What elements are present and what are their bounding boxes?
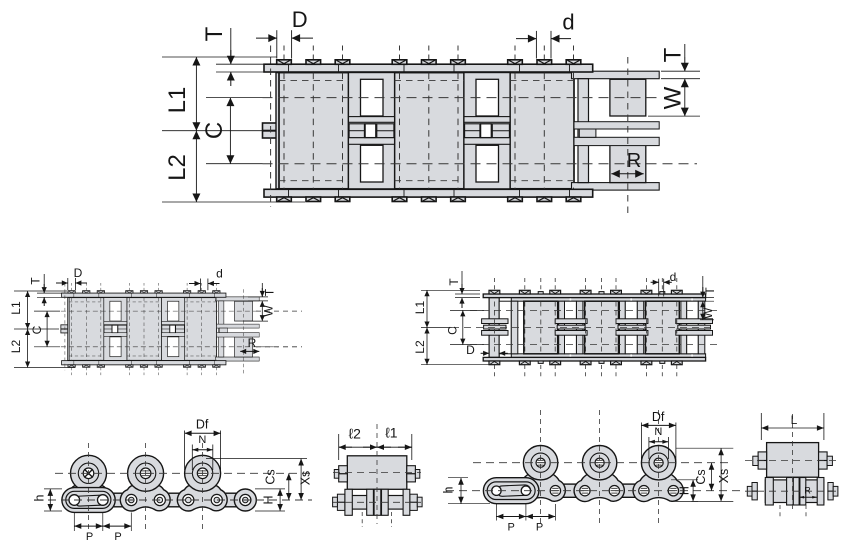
svg-text:T: T bbox=[660, 47, 687, 62]
svg-text:H: H bbox=[677, 486, 691, 495]
svg-text:P: P bbox=[536, 522, 543, 534]
svg-text:ℓ2: ℓ2 bbox=[349, 426, 362, 442]
svg-text:P: P bbox=[86, 531, 93, 543]
svg-text:T: T bbox=[263, 288, 277, 296]
svg-text:W: W bbox=[262, 305, 276, 317]
svg-text:L1: L1 bbox=[413, 301, 427, 315]
svg-text:C: C bbox=[30, 325, 44, 334]
svg-text:d: d bbox=[562, 10, 574, 35]
svg-text:Df: Df bbox=[196, 418, 209, 432]
svg-text:W: W bbox=[660, 86, 687, 109]
svg-text:C: C bbox=[446, 326, 460, 335]
svg-text:T: T bbox=[201, 26, 228, 41]
svg-text:L1: L1 bbox=[164, 87, 191, 114]
svg-text:h: h bbox=[33, 494, 47, 501]
svg-text:L2: L2 bbox=[164, 154, 191, 181]
svg-text:H: H bbox=[262, 495, 276, 504]
svg-text:Xs: Xs bbox=[299, 471, 313, 486]
svg-text:P: P bbox=[508, 522, 515, 534]
svg-text:ℓ1: ℓ1 bbox=[385, 425, 398, 441]
svg-text:D: D bbox=[466, 343, 475, 357]
svg-text:C: C bbox=[201, 122, 228, 139]
svg-text:P: P bbox=[114, 531, 121, 543]
svg-text:d: d bbox=[216, 267, 223, 281]
svg-text:Df: Df bbox=[652, 410, 665, 424]
svg-text:T: T bbox=[447, 278, 461, 286]
svg-text:L1: L1 bbox=[9, 301, 23, 315]
svg-text:h: h bbox=[442, 486, 456, 493]
svg-text:N: N bbox=[198, 434, 206, 446]
svg-text:D: D bbox=[74, 266, 83, 280]
svg-text:L2: L2 bbox=[9, 340, 23, 354]
svg-text:W: W bbox=[701, 307, 715, 319]
svg-text:L: L bbox=[791, 413, 798, 427]
svg-text:D: D bbox=[292, 7, 308, 32]
svg-text:Cs: Cs bbox=[694, 469, 708, 484]
svg-text:R: R bbox=[804, 486, 811, 496]
svg-text:R: R bbox=[248, 336, 257, 350]
svg-text:Xs: Xs bbox=[717, 469, 731, 484]
svg-text:d: d bbox=[670, 270, 677, 284]
svg-text:Cs: Cs bbox=[263, 469, 277, 484]
svg-text:T: T bbox=[703, 287, 717, 295]
svg-text:L2: L2 bbox=[413, 340, 427, 354]
svg-text:T: T bbox=[29, 277, 43, 285]
svg-text:N: N bbox=[654, 426, 662, 438]
svg-text:R: R bbox=[627, 150, 641, 172]
